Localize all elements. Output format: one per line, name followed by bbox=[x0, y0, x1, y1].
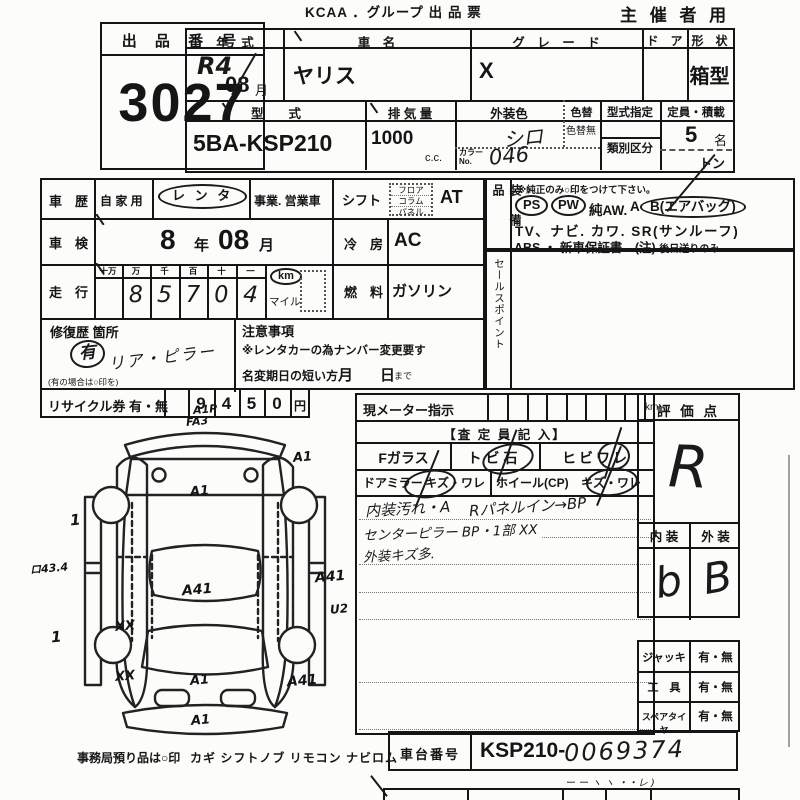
damage-code: A1 bbox=[189, 483, 209, 500]
cooling-value: AC bbox=[394, 230, 421, 252]
repaint-none-label: 色替無 bbox=[566, 122, 596, 137]
tools-value: 有・無 bbox=[689, 679, 742, 695]
displacement-value: 1000 bbox=[371, 128, 413, 150]
type-approval-label: 型式指定 bbox=[600, 104, 660, 120]
auction-sheet: KCAA ．グループ 出 品 票 主 催 者 用 出 品 番 号 3027 年 … bbox=[0, 0, 800, 800]
inspection-label: 車 検 bbox=[49, 233, 88, 252]
damage-code: XX bbox=[114, 668, 135, 685]
damage-code: XX bbox=[114, 618, 135, 635]
bottom-table-cut bbox=[383, 788, 740, 800]
bottom-slash-mark bbox=[370, 775, 388, 797]
rating-score: R bbox=[638, 431, 739, 502]
exterior-score: B bbox=[699, 551, 736, 604]
inspection-month-unit: 月 bbox=[259, 234, 274, 255]
inspector-note: 内装汚れ・A bbox=[365, 496, 451, 521]
caution-suffix: まで bbox=[394, 369, 412, 382]
fuel-value: ガソリン bbox=[392, 280, 452, 301]
damage-code: A41 bbox=[314, 568, 346, 587]
mileage-digit: 0 bbox=[206, 281, 237, 309]
page-edge-line bbox=[788, 455, 790, 747]
damage-code: FA3 bbox=[185, 414, 208, 429]
meter-label: 現メーター指示 bbox=[363, 400, 454, 419]
shift-options: フロア コラム パネル bbox=[389, 183, 433, 216]
car-name: ヤリス bbox=[293, 60, 356, 90]
class-division-label: 類別区分 bbox=[600, 140, 660, 156]
mile-box bbox=[300, 270, 326, 312]
digit-col-10: 十 bbox=[207, 265, 236, 277]
caution-line2: 名変期日の短い方 bbox=[242, 367, 338, 384]
shift-value: AT bbox=[440, 187, 463, 208]
mileage-digit: 7 bbox=[179, 282, 207, 308]
equip-pw-circled: PW bbox=[551, 195, 586, 216]
exterior-label: 外 装 bbox=[689, 526, 742, 545]
usage-private: 自 家 用 bbox=[100, 192, 143, 209]
equip-aw: 純AW. bbox=[589, 199, 627, 219]
cooling-label: 冷 房 bbox=[344, 234, 383, 253]
history-table: 車 歴 自 家 用 レ ン タ 事業. 営業車 車 検 8 年 08 月 走 行… bbox=[40, 178, 485, 390]
office-items: カギ シフトノブ リモコン ナビロム bbox=[190, 749, 398, 766]
mileage-label: 走 行 bbox=[49, 282, 88, 301]
digit-col-1: 一 bbox=[236, 265, 265, 277]
damage-code: 1 bbox=[50, 628, 62, 647]
sales-point-box: セールスポイント bbox=[485, 250, 795, 390]
capacity-label: 定員・積載 bbox=[660, 104, 732, 120]
chassis-box: 車台番号 KSP210- 0069374 bbox=[388, 731, 738, 771]
equipment-box: 装 備 品 ※純正のみ○印をつけて下さい。 PS PW 純AW. A B(エアバ… bbox=[485, 178, 795, 250]
grade-value: X bbox=[479, 58, 494, 84]
wheel-label: ホイール(CP) bbox=[496, 474, 569, 491]
mileage-digit: 8 bbox=[121, 281, 151, 309]
mileage-digit: 4 bbox=[235, 281, 266, 309]
damage-code: A41 bbox=[286, 672, 318, 691]
displacement-unit: c.c. bbox=[425, 152, 442, 164]
chassis-label: 車台番号 bbox=[390, 744, 470, 763]
door-label: ド ア bbox=[642, 32, 687, 49]
inspection-month: 08 bbox=[218, 224, 249, 256]
usage-rental-circled: レ ン タ bbox=[158, 184, 247, 209]
rating-label: 評 価 点 bbox=[639, 400, 738, 420]
mileage-digit: 5 bbox=[149, 281, 179, 308]
inspector-header: 【査 定 員 記 入】 bbox=[357, 424, 653, 443]
equip-ps-circled: PS bbox=[515, 195, 548, 216]
history-label: 車 歴 bbox=[49, 191, 88, 210]
chassis-number: 0069374 bbox=[564, 735, 686, 767]
grade-label: グ レ ー ド bbox=[470, 32, 642, 51]
km-unit-circled: km bbox=[270, 268, 302, 285]
digit-col-10k: 万 bbox=[122, 265, 150, 277]
caution-month: 月 bbox=[338, 364, 353, 385]
damage-code: 1 bbox=[69, 511, 81, 530]
repair-flag-circled: 有 bbox=[69, 338, 107, 369]
sheet-title: KCAA ．グループ 出 品 票 bbox=[305, 1, 545, 21]
accessories-box: ジャッキ 有・無 工 具 有・無 スペアタイヤ 有・無 bbox=[637, 640, 740, 732]
rating-box: 評 価 点 R 内 装 外 装 b B bbox=[637, 393, 740, 618]
damage-code: A41 bbox=[181, 581, 213, 600]
office-note: 事務局預り品は○印 bbox=[77, 749, 180, 766]
sales-point-label: セールスポイント bbox=[492, 258, 507, 388]
damage-code: U2 bbox=[329, 601, 348, 617]
spec-table: 年 式 車 名 グ レ ー ド ド ア 形 状 R4 08 月 ヤリス X 箱型… bbox=[185, 28, 735, 173]
damage-code: A1 bbox=[189, 672, 209, 689]
model-label: 型 式 bbox=[187, 103, 365, 122]
repair-hint: (有の場合は○印を) bbox=[48, 376, 118, 388]
chassis-prefix: KSP210- bbox=[480, 739, 565, 763]
damage-code: A1 bbox=[292, 449, 312, 466]
usage-business: 事業. 営業車 bbox=[254, 192, 321, 209]
displacement-label: 排 気 量 bbox=[365, 103, 455, 122]
caution-line1: ※レンタカーの為ナンバー変更要す bbox=[242, 342, 426, 358]
caution-day: 日 bbox=[380, 364, 395, 385]
capacity-value: 5 bbox=[685, 122, 697, 148]
audience-label: 主 催 者 用 bbox=[620, 1, 780, 26]
inspection-year: 8 bbox=[160, 224, 176, 256]
fuel-label: 燃 料 bbox=[344, 282, 383, 301]
spare-tire-value: 有・無 bbox=[689, 708, 742, 724]
month-unit: 月 bbox=[255, 80, 268, 99]
jack-label: ジャッキ bbox=[639, 649, 689, 665]
repaint-label: 色替 bbox=[563, 104, 600, 120]
repair-label: 修復歴 箇所 bbox=[50, 322, 119, 341]
jack-value: 有・無 bbox=[689, 649, 742, 665]
shift-label: シフト bbox=[342, 190, 381, 209]
damage-code: A1 bbox=[190, 712, 210, 729]
model-code: 5BA-KSP210 bbox=[193, 130, 332, 157]
interior-label: 内 装 bbox=[639, 526, 689, 545]
equip-airbag-circled: B(エアバッグ) bbox=[640, 196, 746, 218]
digit-col-100: 百 bbox=[179, 265, 207, 277]
damage-code: ロ43.4 bbox=[29, 558, 68, 577]
shape-label: 形 状 bbox=[687, 32, 732, 49]
caution-label: 注意事項 bbox=[242, 321, 294, 340]
inspector-note: センターピラー BP・1部 XX bbox=[363, 518, 538, 544]
car-name-label: 車 名 bbox=[283, 32, 470, 51]
color-no-value: 046 bbox=[488, 142, 530, 169]
digit-col-1k: 千 bbox=[150, 265, 179, 277]
color-no-label: カラー No. bbox=[459, 149, 483, 167]
chassis-scribble: ー ー ヽ ヽ ・・レ ) bbox=[565, 774, 655, 789]
crack-label: ヒビワレ bbox=[539, 448, 653, 468]
inspection-year-unit: 年 bbox=[194, 234, 209, 255]
equip-ab-prefix: A bbox=[630, 199, 640, 214]
ext-color-label: 外装色 bbox=[455, 103, 563, 122]
interior-score: b bbox=[651, 555, 686, 608]
year-label: 年 式 bbox=[187, 32, 283, 51]
shape-value: 箱型 bbox=[687, 60, 732, 89]
equipment-note: ※純正のみ○印をつけて下さい。 bbox=[517, 182, 655, 196]
mile-unit: マイル bbox=[269, 294, 301, 309]
repair-detail: リア・ピラー bbox=[107, 338, 217, 375]
damage-diagram: A1P FA3 A1 A1 1 ロ43.4 A41 A41 XX U2 1 XX… bbox=[25, 398, 375, 745]
capacity-unit: 名 bbox=[714, 130, 727, 149]
tools-label: 工 具 bbox=[639, 679, 689, 695]
